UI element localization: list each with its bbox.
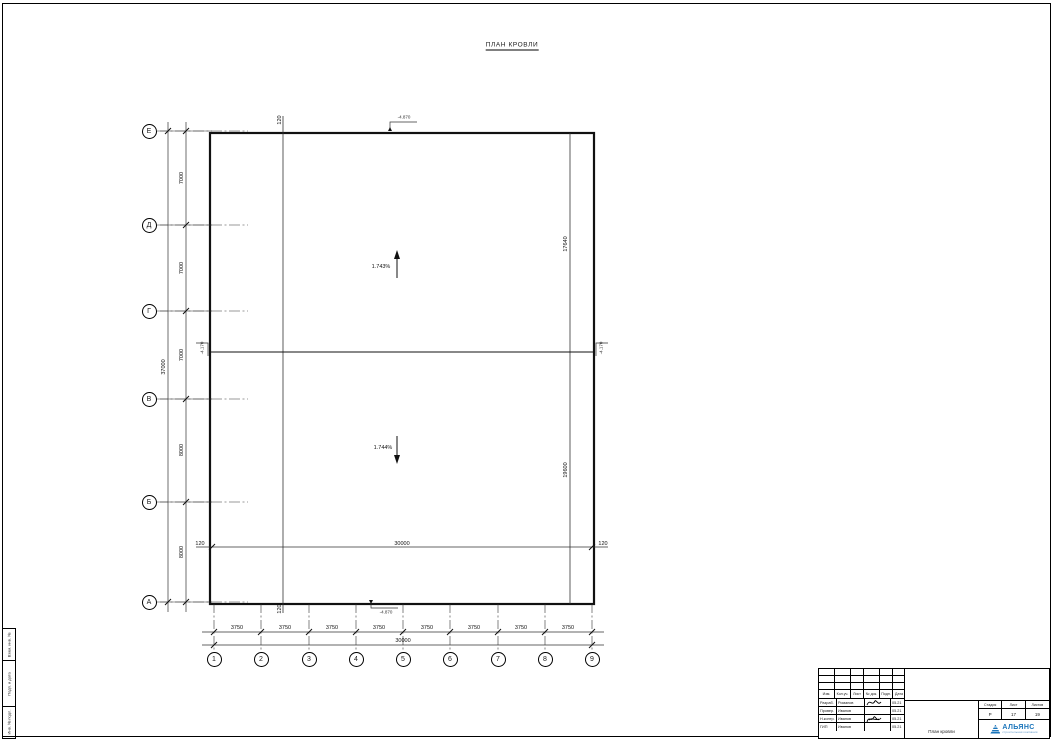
dim-total-label: 37000 bbox=[161, 359, 167, 374]
stage-sheet-header: Стадия Лист Листов bbox=[979, 701, 1049, 709]
elevation-label: -4.870 bbox=[398, 115, 411, 120]
date-cell: 05.21 bbox=[891, 715, 905, 722]
axis-circle-col-3: 3 bbox=[302, 652, 317, 667]
drawing-sheet: { "drawing": { "title": "ПЛАН КРОВЛИ" },… bbox=[0, 0, 1053, 740]
change-table-header: Изм. Кол.уч. Лист № док. Подп. Дата bbox=[819, 690, 904, 699]
side-stamp-label: Взам. инв. № bbox=[7, 632, 12, 657]
dim-label: 3750 bbox=[373, 625, 385, 631]
axis-col-label: 2 bbox=[259, 656, 263, 663]
signature-row: Н.контр. Иванов 05.21 bbox=[819, 715, 904, 723]
side-stamp-cell: Инв. № подл. bbox=[3, 707, 15, 738]
axis-circle-row-d: Д bbox=[142, 218, 157, 233]
header-cell: Кол.уч. bbox=[835, 690, 851, 698]
axis-circle-row-b: Б bbox=[142, 495, 157, 510]
role-cell: ГИП bbox=[819, 723, 837, 731]
stage-sheet-values: Р 17 19 bbox=[979, 709, 1049, 720]
document-code-cell bbox=[905, 669, 1049, 701]
axis-circle-row-e: Е bbox=[142, 124, 157, 139]
title-block-left: Изм. Кол.уч. Лист № док. Подп. Дата Разр… bbox=[819, 669, 905, 738]
roof-offset-label: 120 bbox=[598, 541, 607, 547]
axis-col-label: 4 bbox=[354, 656, 358, 663]
side-stamp-cell: Взам. инв. № bbox=[3, 629, 15, 661]
panel-depth-label: 19600 bbox=[563, 462, 569, 477]
axis-col-label: 8 bbox=[543, 656, 547, 663]
axis-row-label: А bbox=[147, 599, 152, 606]
role-cell: Провер. bbox=[819, 707, 837, 714]
roof-offset-label: 120 bbox=[195, 541, 204, 547]
dim-label: 8000 bbox=[179, 546, 185, 558]
axis-circle-col-4: 4 bbox=[349, 652, 364, 667]
panel-depth-label: 17640 bbox=[563, 236, 569, 251]
side-stamp-cell: Подп. и дата bbox=[3, 661, 15, 706]
dim-label: 3750 bbox=[279, 625, 291, 631]
axis-circle-col-1: 1 bbox=[207, 652, 222, 667]
dim-label: 7000 bbox=[179, 349, 185, 361]
title-block-bottom: План кровли Стадия Лист Листов Р 17 19 А… bbox=[905, 701, 1049, 738]
name-cell: Иванов bbox=[837, 707, 865, 714]
elevation-label: -4.170 bbox=[200, 342, 205, 355]
roof-offset-label: 120 bbox=[277, 604, 283, 613]
dim-label: 7000 bbox=[179, 172, 185, 184]
axis-circle-col-6: 6 bbox=[443, 652, 458, 667]
roof-width-label: 30000 bbox=[394, 541, 409, 547]
axis-col-label: 7 bbox=[496, 656, 500, 663]
dim-label: 3750 bbox=[562, 625, 574, 631]
header-cell: Лист bbox=[851, 690, 864, 698]
dim-label: 3750 bbox=[231, 625, 243, 631]
axis-row-label: Б bbox=[147, 499, 152, 506]
stage-value: Р bbox=[979, 709, 1002, 719]
change-row bbox=[819, 676, 904, 683]
dim-label: 3750 bbox=[468, 625, 480, 631]
company-tagline: строительная компания bbox=[1002, 731, 1037, 734]
header-cell: № док. bbox=[864, 690, 880, 698]
axis-circle-col-8: 8 bbox=[538, 652, 553, 667]
date-cell: 05.21 bbox=[891, 723, 905, 731]
title-block: Изм. Кол.уч. Лист № док. Подп. Дата Разр… bbox=[818, 668, 1050, 739]
elevation-label: -4.870 bbox=[380, 610, 393, 615]
axis-row-label: Д bbox=[147, 222, 152, 229]
stage-sheet-block: Стадия Лист Листов Р 17 19 АЛЬЯНС строит… bbox=[979, 701, 1049, 738]
role-cell: Разраб. bbox=[819, 699, 837, 706]
dim-label: 3750 bbox=[515, 625, 527, 631]
signature-row: Разраб. Романов 05.21 bbox=[819, 699, 904, 707]
date-cell: 05.21 bbox=[891, 699, 905, 706]
axis-circle-col-5: 5 bbox=[396, 652, 411, 667]
dim-label: 7000 bbox=[179, 262, 185, 274]
signature-cell bbox=[865, 715, 891, 722]
axis-circle-row-g: Г bbox=[142, 304, 157, 319]
stage-label: Стадия bbox=[979, 701, 1002, 708]
header-cell: Подп. bbox=[880, 690, 893, 698]
side-stamp-label: Инв. № подл. bbox=[7, 710, 12, 735]
sheet-value: 17 bbox=[1002, 709, 1025, 719]
axis-col-label: 9 bbox=[590, 656, 594, 663]
signature-row: ГИП Иванов 05.21 bbox=[819, 723, 904, 731]
dim-label: 8000 bbox=[179, 444, 185, 456]
header-cell: Дата bbox=[893, 690, 905, 698]
name-cell: Иванов bbox=[837, 723, 865, 731]
axis-col-label: 6 bbox=[448, 656, 452, 663]
logo-text: АЛЬЯНС строительная компания bbox=[1002, 724, 1037, 734]
slope-label: 1.743% bbox=[372, 264, 391, 270]
change-row bbox=[819, 683, 904, 690]
date-cell: 05.21 bbox=[891, 707, 905, 714]
company-logo: АЛЬЯНС строительная компания bbox=[979, 720, 1049, 738]
axis-row-label: В bbox=[147, 396, 152, 403]
sheet-label: Лист bbox=[1002, 701, 1025, 708]
logo-triangle-icon bbox=[990, 725, 1000, 734]
signature-row: Провер. Иванов 05.21 bbox=[819, 707, 904, 715]
axis-circle-col-9: 9 bbox=[585, 652, 600, 667]
sheets-value: 19 bbox=[1026, 709, 1049, 719]
sheets-label: Листов bbox=[1026, 701, 1049, 708]
signature-cell bbox=[865, 723, 891, 731]
header-cell: Изм. bbox=[819, 690, 835, 698]
axis-col-label: 1 bbox=[212, 656, 216, 663]
signature-cell bbox=[865, 699, 891, 706]
sheet-title-cell: План кровли bbox=[905, 701, 979, 738]
change-row bbox=[819, 669, 904, 676]
dim-total-label: 30000 bbox=[395, 638, 410, 644]
signature-cell bbox=[865, 707, 891, 714]
side-stamp: Взам. инв. № Подп. и дата Инв. № подл. bbox=[2, 628, 16, 739]
axis-circle-col-7: 7 bbox=[491, 652, 506, 667]
axis-row-label: Е bbox=[147, 128, 152, 135]
signature-scribble bbox=[866, 698, 882, 707]
axis-circle-row-a: А bbox=[142, 595, 157, 610]
elevation-label: -4.170 bbox=[599, 342, 604, 355]
name-cell: Иванов bbox=[837, 715, 865, 722]
name-cell: Романов bbox=[837, 699, 865, 706]
roof-offset-label: 120 bbox=[277, 115, 283, 124]
dim-label: 3750 bbox=[421, 625, 433, 631]
role-cell: Н.контр. bbox=[819, 715, 837, 722]
axis-row-label: Г bbox=[147, 308, 151, 315]
dim-label: 3750 bbox=[326, 625, 338, 631]
axis-circle-col-2: 2 bbox=[254, 652, 269, 667]
axis-circle-row-v: В bbox=[142, 392, 157, 407]
slope-label: 1.744% bbox=[374, 445, 393, 451]
axis-col-label: 5 bbox=[401, 656, 405, 663]
side-stamp-label: Подп. и дата bbox=[7, 672, 12, 696]
drawing-title: ПЛАН КРОВЛИ bbox=[486, 42, 539, 51]
axis-col-label: 3 bbox=[307, 656, 311, 663]
title-block-right: План кровли Стадия Лист Листов Р 17 19 А… bbox=[905, 669, 1049, 738]
